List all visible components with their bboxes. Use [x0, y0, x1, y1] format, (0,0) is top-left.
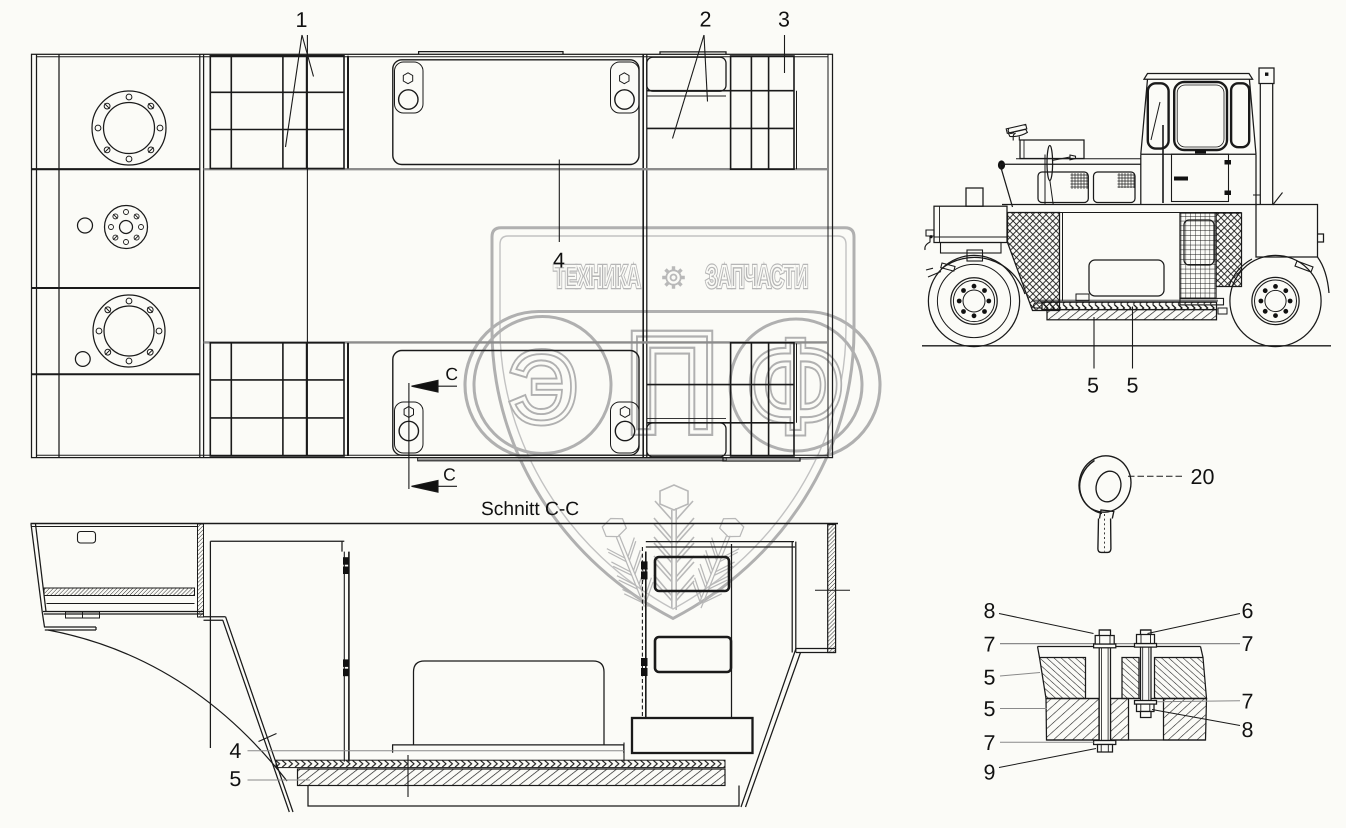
- svg-text:ЗАПЧАСТИ: ЗАПЧАСТИ: [706, 260, 808, 294]
- svg-text:7: 7: [1242, 632, 1254, 656]
- svg-text:Ф: Ф: [748, 313, 843, 460]
- svg-text:5: 5: [1087, 374, 1099, 398]
- svg-text:4: 4: [553, 249, 565, 273]
- svg-text:C: C: [445, 364, 458, 384]
- svg-text:Э: Э: [510, 332, 578, 444]
- svg-text:5: 5: [984, 697, 996, 721]
- svg-text:4: 4: [229, 739, 241, 763]
- svg-text:Schnitt C-C: Schnitt C-C: [481, 499, 579, 520]
- svg-text:ТЕХНИКА: ТЕХНИКА: [554, 260, 640, 294]
- svg-text:7: 7: [984, 633, 996, 657]
- svg-text:5: 5: [1127, 374, 1139, 398]
- svg-text:3: 3: [778, 8, 790, 32]
- svg-text:5: 5: [229, 767, 241, 791]
- svg-text:7: 7: [1242, 690, 1254, 714]
- svg-text:2: 2: [700, 8, 712, 32]
- svg-text:9: 9: [984, 761, 996, 785]
- svg-text:1: 1: [296, 8, 308, 32]
- svg-text:8: 8: [984, 599, 996, 623]
- svg-text:7: 7: [984, 731, 996, 755]
- svg-text:6: 6: [1242, 599, 1254, 623]
- svg-text:C: C: [443, 465, 456, 485]
- svg-text:20: 20: [1191, 465, 1215, 489]
- svg-text:8: 8: [1242, 718, 1254, 742]
- svg-text:5: 5: [984, 666, 996, 690]
